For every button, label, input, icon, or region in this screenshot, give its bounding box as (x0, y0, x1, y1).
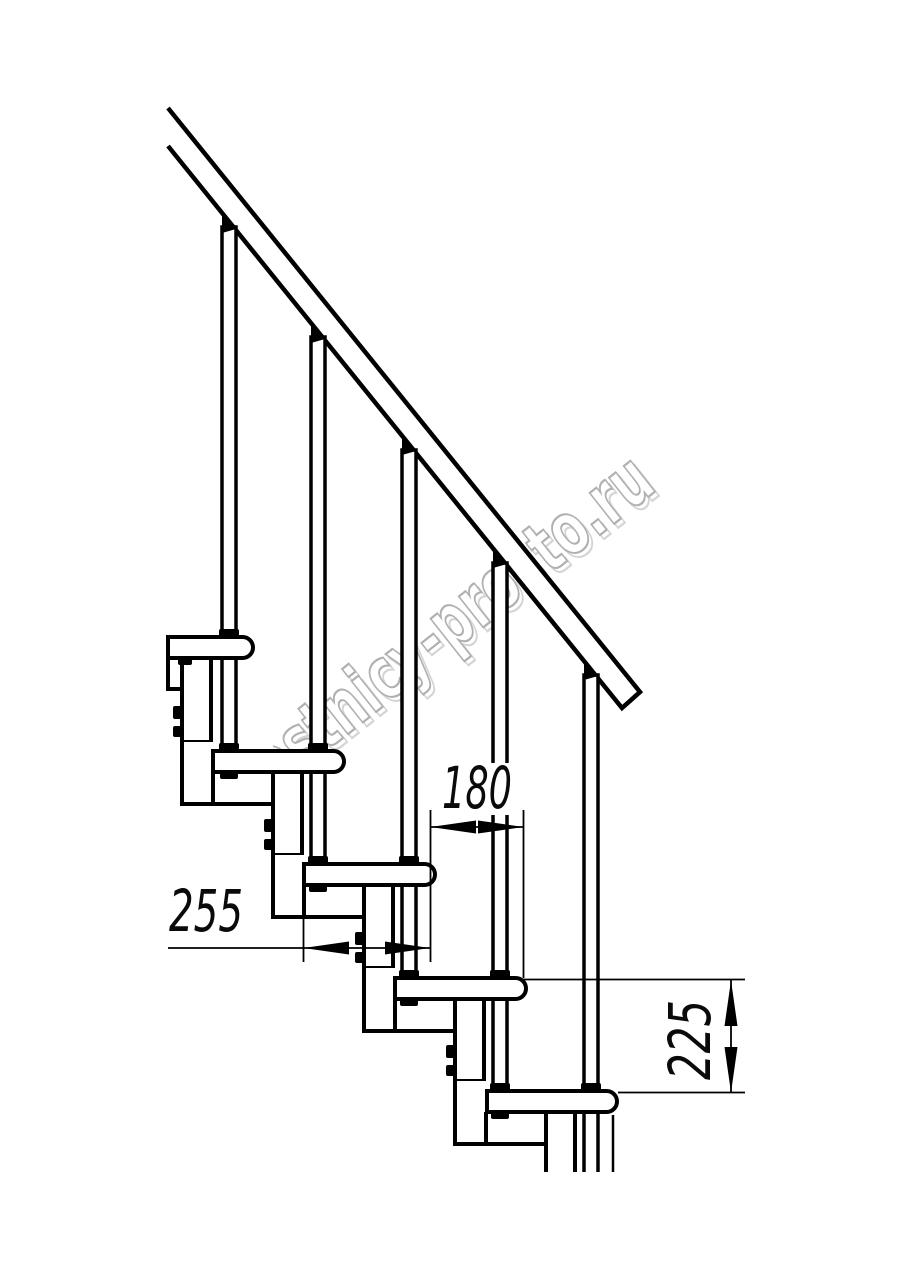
baluster (311, 337, 325, 751)
clip (446, 1065, 457, 1076)
washer (581, 1083, 601, 1091)
tread (213, 751, 344, 772)
clip (173, 726, 184, 737)
tread (168, 637, 253, 658)
tread (395, 978, 526, 999)
clip (264, 839, 275, 850)
stair-technical-drawing: lestnicy-prosto.ru lestnicy-prosto.ru (0, 0, 914, 1280)
column-segment (273, 772, 302, 855)
dimension-step-run: 180 (430, 754, 524, 978)
baluster (222, 227, 236, 637)
baluster-lower (222, 658, 236, 751)
tread (304, 864, 435, 885)
clip (264, 819, 275, 832)
clip (446, 1045, 457, 1058)
column-segment-cut (546, 1112, 575, 1172)
baluster-lower (402, 885, 416, 978)
washer (490, 1083, 510, 1091)
dimension-label-255: 255 (169, 877, 243, 945)
column-segment (182, 658, 211, 742)
washer (308, 743, 328, 751)
washer (219, 629, 239, 637)
dimension-label-225: 225 (656, 1000, 724, 1080)
dimension-step-rise: 225 (523, 980, 745, 1093)
tread (487, 1091, 617, 1112)
clip (355, 932, 366, 945)
baluster-lower (493, 999, 507, 1091)
baluster (584, 675, 598, 1091)
baluster-lower-cut (584, 1112, 598, 1172)
nut (178, 658, 192, 665)
column-segment (455, 999, 484, 1081)
nut (491, 1112, 509, 1119)
nut (400, 999, 418, 1006)
washer (490, 970, 510, 978)
washer (399, 970, 419, 978)
washer (399, 856, 419, 864)
clip (355, 952, 366, 963)
nut (309, 885, 327, 892)
column-segment (364, 885, 393, 968)
baluster-lower (311, 772, 325, 864)
baluster (402, 450, 416, 864)
washer (308, 856, 328, 864)
washer (219, 743, 239, 751)
clip (173, 706, 184, 719)
dimension-label-180: 180 (442, 754, 512, 822)
nut (220, 772, 238, 779)
